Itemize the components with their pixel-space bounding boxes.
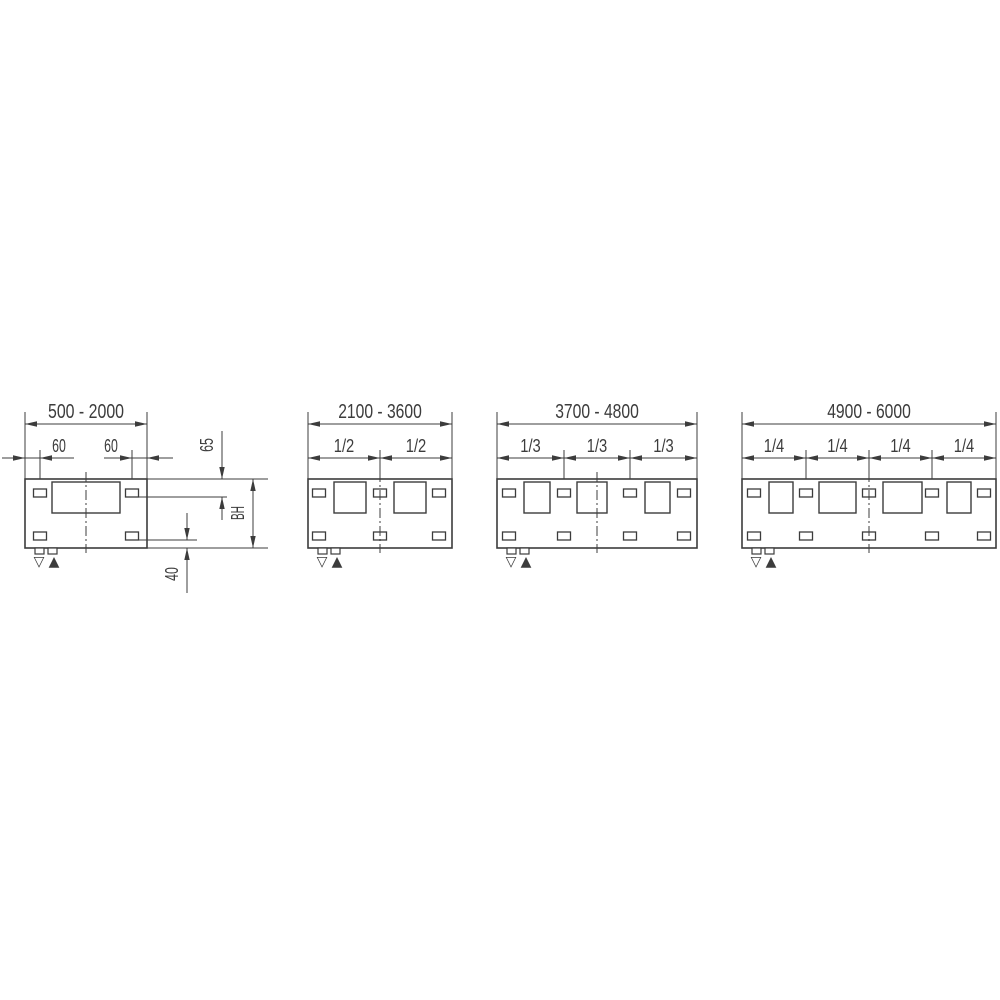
dimension-arrowhead (920, 455, 932, 460)
mounting-bracket-top (800, 489, 813, 497)
mounting-bracket-bottom (748, 532, 761, 540)
offset-label: 60 (104, 436, 118, 456)
panel-3700-4800: 3700 - 48001/31/31/3▽▲ (497, 401, 697, 570)
range-label: 500 - 2000 (48, 401, 124, 423)
mounting-bracket-top (433, 489, 446, 497)
side-dimensions: 65BH40 (139, 431, 268, 593)
dimension-arrowhead (806, 455, 818, 460)
fraction-label: 1/2 (406, 436, 427, 456)
dimension-arrowhead (564, 455, 576, 460)
dimension-arrowhead (184, 548, 189, 560)
fraction-label: 1/3 (587, 436, 608, 456)
panel-2100-3600: 2100 - 36001/21/2▽▲ (308, 401, 452, 570)
fraction-label: 1/4 (890, 436, 911, 456)
mounting-bracket-bottom (558, 532, 571, 540)
fraction-label: 1/4 (954, 436, 975, 456)
mounting-bracket-top (503, 489, 516, 497)
panel-4900-6000: 4900 - 60001/41/41/41/4▽▲ (742, 401, 996, 570)
panel-opening (334, 482, 366, 513)
triangle-down-symbol: ▽ (317, 554, 328, 570)
mounting-bracket-bottom (926, 532, 939, 540)
panel-opening (819, 482, 856, 513)
mounting-bracket-top (313, 489, 326, 497)
dimension-arrowhead (184, 528, 189, 540)
range-label: 4900 - 6000 (827, 401, 911, 423)
triangle-up-symbol: ▲ (521, 554, 532, 570)
mounting-bracket-bottom (624, 532, 637, 540)
triangle-down-symbol: ▽ (751, 554, 762, 570)
range-label: 2100 - 3600 (338, 401, 422, 423)
fraction-label: 1/3 (520, 436, 541, 456)
panel-opening (577, 482, 607, 513)
dimension-arrowhead (497, 421, 509, 426)
dimension-arrowhead (932, 455, 944, 460)
bottom-offset-label: 40 (162, 567, 182, 581)
mounting-bracket-bottom (800, 532, 813, 540)
mounting-bracket-top (126, 489, 139, 497)
dimension-arrowhead (497, 455, 509, 460)
mounting-bracket-top (926, 489, 939, 497)
dimension-arrowhead (135, 421, 147, 426)
triangle-down-symbol: ▽ (506, 554, 517, 570)
fraction-label: 1/3 (653, 436, 674, 456)
dimension-arrowhead (147, 455, 159, 460)
dimension-arrowhead (40, 455, 52, 460)
dimension-arrowhead (13, 455, 25, 460)
dimension-arrowhead (219, 497, 224, 509)
dimension-arrowhead (742, 455, 754, 460)
dimension-arrowhead (368, 455, 380, 460)
dimension-arrowhead (794, 455, 806, 460)
dimension-arrowhead (685, 421, 697, 426)
dimension-arrowhead (250, 479, 255, 491)
dimension-arrowhead (25, 421, 37, 426)
dimension-arrowhead (380, 455, 392, 460)
triangle-up-symbol: ▲ (49, 554, 60, 570)
fraction-label: 1/4 (827, 436, 848, 456)
dimension-arrowhead (984, 455, 996, 460)
dimension-arrowhead (120, 455, 132, 460)
triangle-up-symbol: ▲ (766, 554, 777, 570)
mounting-bracket-bottom (34, 532, 47, 540)
mounting-bracket-top (624, 489, 637, 497)
triangle-up-symbol: ▲ (332, 554, 343, 570)
mounting-bracket-top (678, 489, 691, 497)
mounting-bracket-bottom (503, 532, 516, 540)
dimension-arrowhead (440, 455, 452, 460)
panel-opening (947, 482, 971, 513)
panel-opening (394, 482, 426, 513)
mounting-bracket-bottom (126, 532, 139, 540)
build-height-label: BH (228, 506, 248, 520)
dimension-arrowhead (219, 467, 224, 479)
panel-opening (769, 482, 793, 513)
fraction-label: 1/2 (334, 436, 355, 456)
dimension-arrowhead (308, 455, 320, 460)
panel-500-2000: 500 - 20006060▽▲65BH40 (2, 401, 268, 593)
dimension-arrowhead (857, 455, 869, 460)
dimension-arrowhead (685, 455, 697, 460)
dimension-arrowhead (630, 455, 642, 460)
dimension-arrowhead (250, 536, 255, 548)
dimension-arrowhead (742, 421, 754, 426)
dimension-arrowhead (552, 455, 564, 460)
dimension-arrowhead (440, 421, 452, 426)
mounting-bracket-top (748, 489, 761, 497)
range-dimension: 500 - 2000 (25, 401, 147, 479)
mounting-bracket-top (558, 489, 571, 497)
mounting-bracket-bottom (678, 532, 691, 540)
dimension-arrowhead (308, 421, 320, 426)
panel-opening (645, 482, 670, 513)
fraction-label: 1/4 (764, 436, 785, 456)
mounting-bracket-bottom (433, 532, 446, 540)
offset-label: 60 (52, 436, 66, 456)
panel-opening (883, 482, 922, 513)
mounting-bracket-top (978, 489, 991, 497)
mounting-bracket-top (34, 489, 47, 497)
top-offset-label: 65 (197, 438, 217, 452)
triangle-down-symbol: ▽ (34, 554, 45, 570)
dimension-arrowhead (984, 421, 996, 426)
dimension-arrowhead (869, 455, 881, 460)
panel-opening (524, 482, 550, 513)
mounting-diagram: 500 - 20006060▽▲65BH402100 - 36001/21/2▽… (0, 0, 1000, 1000)
mounting-bracket-bottom (978, 532, 991, 540)
mounting-bracket-bottom (313, 532, 326, 540)
dimension-arrowhead (618, 455, 630, 460)
range-label: 3700 - 4800 (555, 401, 639, 423)
technical-drawing-canvas: 500 - 20006060▽▲65BH402100 - 36001/21/2▽… (0, 0, 1000, 1000)
